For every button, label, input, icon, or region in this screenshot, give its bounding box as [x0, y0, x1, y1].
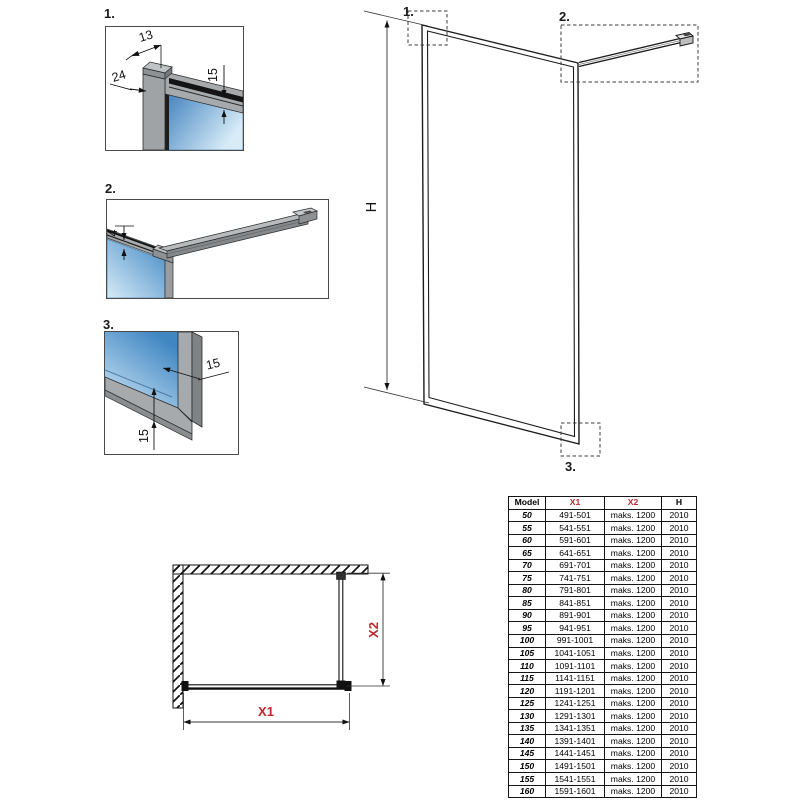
- table-cell: maks. 1200: [605, 735, 662, 748]
- dim-15-bottom: 15: [137, 429, 151, 443]
- table-cell: maks. 1200: [605, 672, 662, 685]
- table-row: 50491-501maks. 12002010: [509, 509, 697, 522]
- table-cell: 100: [509, 635, 546, 648]
- table-cell: 85: [509, 597, 546, 610]
- plan-view: X1 X2: [150, 545, 400, 740]
- table-cell: maks. 1200: [605, 773, 662, 786]
- table-cell: 1041-1051: [546, 647, 605, 660]
- table-row: 90891-901maks. 12002010: [509, 609, 697, 622]
- table-row: 1201191-1201maks. 12002010: [509, 685, 697, 698]
- table-row: 1101091-1101maks. 12002010: [509, 660, 697, 673]
- table-cell: 2010: [662, 660, 697, 673]
- table-row: 1251241-1251maks. 12002010: [509, 697, 697, 710]
- table-cell: 891-901: [546, 609, 605, 622]
- plan-width-label: X1: [258, 704, 274, 719]
- table-cell: 125: [509, 697, 546, 710]
- table-cell: 591-601: [546, 534, 605, 547]
- table-cell: maks. 1200: [605, 647, 662, 660]
- detail-1-drawing: 13 24 15: [105, 26, 244, 151]
- table-cell: 2010: [662, 747, 697, 760]
- side-profile: [178, 332, 192, 421]
- table-cell: 1291-1301: [546, 710, 605, 723]
- table-cell: 1241-1251: [546, 697, 605, 710]
- table-cell: 2010: [662, 773, 697, 786]
- col-header-model: Model: [509, 497, 546, 510]
- detail-1-svg: 13 24 15: [106, 27, 243, 150]
- table-cell: 2010: [662, 710, 697, 723]
- table-cell: maks. 1200: [605, 547, 662, 560]
- table-cell: 110: [509, 660, 546, 673]
- table-cell: maks. 1200: [605, 609, 662, 622]
- detail-3-svg: 15 15: [105, 332, 238, 454]
- support-bar: [579, 39, 680, 63]
- table-cell: 50: [509, 509, 546, 522]
- table-cell: 105: [509, 647, 546, 660]
- detail-3-label: 3.: [103, 317, 114, 332]
- end-profile: [165, 257, 173, 298]
- wall-profile: [143, 74, 165, 150]
- table-cell: maks. 1200: [605, 509, 662, 522]
- dim-13: 13: [137, 27, 154, 44]
- table-cell: 741-751: [546, 572, 605, 585]
- glass-edge: [165, 94, 169, 150]
- plan-depth-label: X2: [366, 622, 381, 638]
- table-cell: 135: [509, 722, 546, 735]
- table-cell: 60: [509, 534, 546, 547]
- table-cell: 160: [509, 785, 546, 798]
- callout-box-3: [561, 423, 600, 456]
- table-cell: 691-701: [546, 559, 605, 572]
- table-cell: 150: [509, 760, 546, 773]
- table-row: 95941-951maks. 12002010: [509, 622, 697, 635]
- table-row: 65641-651maks. 12002010: [509, 547, 697, 560]
- table-cell: 2010: [662, 584, 697, 597]
- table-cell: 2010: [662, 559, 697, 572]
- table-header-row: Model X1 X2 H: [509, 497, 697, 510]
- table-cell: 2010: [662, 672, 697, 685]
- callout-2-label: 2.: [559, 9, 570, 24]
- table-cell: maks. 1200: [605, 635, 662, 648]
- table-cell: 1541-1551: [546, 773, 605, 786]
- table-cell: maks. 1200: [605, 597, 662, 610]
- callout-box-2: [561, 25, 698, 82]
- table-cell: maks. 1200: [605, 785, 662, 798]
- table-cell: 2010: [662, 622, 697, 635]
- table-cell: 2010: [662, 697, 697, 710]
- table-cell: 2010: [662, 597, 697, 610]
- table-cell: maks. 1200: [605, 697, 662, 710]
- table-cell: 2010: [662, 635, 697, 648]
- table-cell: 2010: [662, 509, 697, 522]
- table-row: 1601591-1601maks. 12002010: [509, 785, 697, 798]
- spec-table: Model X1 X2 H 50491-501maks. 12002010555…: [508, 496, 697, 798]
- table-row: 75741-751maks. 12002010: [509, 572, 697, 585]
- support-bar: [159, 214, 308, 251]
- height-dim-label: H: [364, 202, 380, 212]
- table-cell: 140: [509, 735, 546, 748]
- table-cell: 2010: [662, 785, 697, 798]
- table-row: 60591-601maks. 12002010: [509, 534, 697, 547]
- table-cell: 2010: [662, 735, 697, 748]
- table-cell: 1091-1101: [546, 660, 605, 673]
- table-cell: 1191-1201: [546, 685, 605, 698]
- table-cell: 90: [509, 609, 546, 622]
- detail-2-svg: 4: [107, 200, 328, 298]
- table-cell: maks. 1200: [605, 722, 662, 735]
- table-row: 100991-1001maks. 12002010: [509, 635, 697, 648]
- table-cell: 2010: [662, 760, 697, 773]
- table-cell: maks. 1200: [605, 572, 662, 585]
- table-row: 80791-801maks. 12002010: [509, 584, 697, 597]
- detail-2-drawing: 4: [106, 199, 329, 299]
- callout-3-label: 3.: [565, 459, 576, 474]
- wall-profile-plan: [182, 681, 189, 691]
- callout-1-label: 1.: [403, 4, 414, 19]
- table-cell: maks. 1200: [605, 747, 662, 760]
- table-cell: 130: [509, 710, 546, 723]
- table-cell: 155: [509, 773, 546, 786]
- table-row: 1301291-1301maks. 12002010: [509, 710, 697, 723]
- table-cell: 641-651: [546, 547, 605, 560]
- table-cell: maks. 1200: [605, 559, 662, 572]
- table-cell: maks. 1200: [605, 710, 662, 723]
- table-cell: 791-801: [546, 584, 605, 597]
- detail-3-drawing: 15 15: [104, 331, 239, 455]
- panel-outline: [422, 25, 579, 444]
- table-row: 55541-551maks. 12002010: [509, 522, 697, 535]
- table-cell: maks. 1200: [605, 522, 662, 535]
- table-cell: 55: [509, 522, 546, 535]
- table-cell: 145: [509, 747, 546, 760]
- table-cell: 1441-1451: [546, 747, 605, 760]
- table-cell: maks. 1200: [605, 622, 662, 635]
- table-row: 1501491-1501maks. 12002010: [509, 760, 697, 773]
- dim-24: 24: [110, 67, 127, 84]
- table-cell: 2010: [662, 609, 697, 622]
- col-header-h: H: [662, 497, 697, 510]
- dim-15-side: 15: [205, 356, 222, 373]
- table-cell: 1591-1601: [546, 785, 605, 798]
- table-cell: 65: [509, 547, 546, 560]
- table-cell: 541-551: [546, 522, 605, 535]
- dim-4: 4: [107, 229, 120, 236]
- detail-2-label: 2.: [105, 181, 116, 196]
- table-cell: 1341-1351: [546, 722, 605, 735]
- detail-1-label: 1.: [104, 6, 115, 21]
- table-cell: 120: [509, 685, 546, 698]
- table-cell: 941-951: [546, 622, 605, 635]
- table-cell: 2010: [662, 722, 697, 735]
- table-row: 1151141-1151maks. 12002010: [509, 672, 697, 685]
- table-cell: maks. 1200: [605, 760, 662, 773]
- table-cell: 841-851: [546, 597, 605, 610]
- table-cell: 1141-1151: [546, 672, 605, 685]
- table-cell: 80: [509, 584, 546, 597]
- table-cell: 1491-1501: [546, 760, 605, 773]
- table-cell: 2010: [662, 534, 697, 547]
- table-cell: 95: [509, 622, 546, 635]
- table-row: 1451441-1451maks. 12002010: [509, 747, 697, 760]
- table-cell: maks. 1200: [605, 685, 662, 698]
- spec-table-body: 50491-501maks. 1200201055541-551maks. 12…: [509, 509, 697, 798]
- table-cell: 2010: [662, 685, 697, 698]
- table-row: 1051041-1051maks. 12002010: [509, 647, 697, 660]
- table-cell: 2010: [662, 572, 697, 585]
- table-cell: maks. 1200: [605, 584, 662, 597]
- table-row: 1351341-1351maks. 12002010: [509, 722, 697, 735]
- table-cell: 2010: [662, 522, 697, 535]
- table-cell: 1391-1401: [546, 735, 605, 748]
- table-cell: 2010: [662, 547, 697, 560]
- table-cell: 115: [509, 672, 546, 685]
- table-row: 70691-701maks. 12002010: [509, 559, 697, 572]
- col-header-x1: X1: [546, 497, 605, 510]
- table-cell: 491-501: [546, 509, 605, 522]
- table-cell: maks. 1200: [605, 660, 662, 673]
- table-row: 85841-851maks. 12002010: [509, 597, 697, 610]
- table-cell: 75: [509, 572, 546, 585]
- technical-drawing-sheet: 1.: [0, 0, 800, 800]
- col-header-x2: X2: [605, 497, 662, 510]
- table-cell: maks. 1200: [605, 534, 662, 547]
- table-cell: 2010: [662, 647, 697, 660]
- table-row: 1551541-1551maks. 12002010: [509, 773, 697, 786]
- elevation-view: H 1. 2. 3.: [358, 0, 703, 480]
- table-row: 1401391-1401maks. 12002010: [509, 735, 697, 748]
- dim-15: 15: [206, 68, 220, 82]
- table-cell: 991-1001: [546, 635, 605, 648]
- table-cell: 70: [509, 559, 546, 572]
